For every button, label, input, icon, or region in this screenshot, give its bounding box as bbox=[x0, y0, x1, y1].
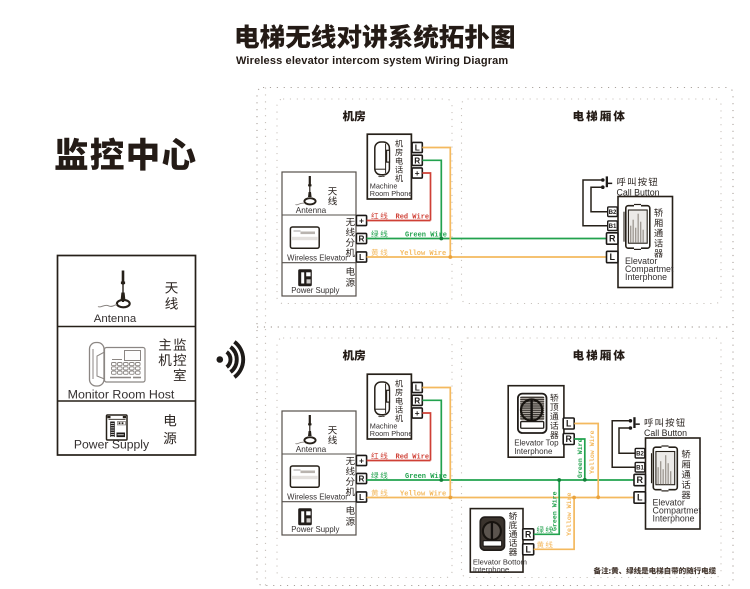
svg-text:Wireless Elevator: Wireless Elevator bbox=[287, 492, 348, 501]
svg-text:Green Wire: Green Wire bbox=[405, 232, 447, 240]
svg-text:L: L bbox=[359, 493, 364, 502]
svg-text:Power Supply: Power Supply bbox=[74, 438, 150, 452]
svg-text:Power Supply: Power Supply bbox=[291, 286, 339, 295]
svg-text:R: R bbox=[636, 475, 643, 485]
svg-text:L: L bbox=[526, 545, 532, 555]
svg-text:R: R bbox=[359, 475, 365, 484]
svg-text:Interphone: Interphone bbox=[653, 514, 695, 524]
svg-text:Antenna: Antenna bbox=[296, 445, 327, 454]
svg-text:R: R bbox=[566, 434, 573, 444]
svg-text:+: + bbox=[415, 409, 420, 418]
svg-text:Yellow Wire: Yellow Wire bbox=[589, 430, 596, 474]
svg-text:R: R bbox=[359, 235, 365, 244]
svg-text:L: L bbox=[637, 493, 643, 503]
svg-text:L: L bbox=[415, 384, 420, 393]
svg-text:L: L bbox=[609, 252, 615, 262]
svg-text:Wireless Elevator: Wireless Elevator bbox=[287, 253, 348, 262]
svg-text:B2: B2 bbox=[609, 209, 617, 216]
svg-text:B1: B1 bbox=[609, 223, 617, 230]
svg-text:Interphone: Interphone bbox=[625, 272, 667, 282]
svg-text:Room Phone: Room Phone bbox=[370, 429, 413, 438]
svg-text:R: R bbox=[525, 530, 532, 540]
svg-text:Red Wire: Red Wire bbox=[396, 454, 430, 462]
svg-text:B2: B2 bbox=[636, 450, 644, 457]
svg-text:L: L bbox=[566, 419, 572, 429]
svg-text:Yellow Wire: Yellow Wire bbox=[400, 491, 446, 499]
svg-text:Power Supply: Power Supply bbox=[291, 525, 339, 534]
svg-text:Interphone: Interphone bbox=[514, 447, 553, 456]
svg-text:Red Wire: Red Wire bbox=[396, 214, 430, 222]
svg-text:R: R bbox=[414, 156, 420, 165]
svg-text:+: + bbox=[359, 217, 364, 226]
svg-text:Antenna: Antenna bbox=[94, 313, 137, 325]
svg-text:R: R bbox=[609, 234, 616, 244]
svg-text:Room Phone: Room Phone bbox=[370, 189, 413, 198]
svg-text:Yellow Wire: Yellow Wire bbox=[566, 492, 573, 536]
svg-text:Antenna: Antenna bbox=[296, 206, 327, 215]
svg-text:Green Wire: Green Wire bbox=[405, 473, 447, 481]
svg-text:L: L bbox=[415, 144, 420, 153]
svg-text:Green Wire: Green Wire bbox=[551, 491, 558, 531]
svg-text:Yellow Wire: Yellow Wire bbox=[400, 250, 446, 258]
svg-text:Interphone: Interphone bbox=[473, 565, 509, 574]
svg-text:Monitor Room Host: Monitor Room Host bbox=[68, 387, 175, 401]
svg-text:Green Wire: Green Wire bbox=[577, 438, 584, 478]
svg-text:B1: B1 bbox=[636, 464, 644, 471]
svg-text:R: R bbox=[414, 396, 420, 405]
svg-text:+: + bbox=[415, 169, 420, 178]
svg-text:Wireless elevator intercom sys: Wireless elevator intercom system Wiring… bbox=[236, 55, 508, 67]
svg-text:Call Button: Call Button bbox=[644, 428, 687, 438]
svg-text:L: L bbox=[359, 253, 364, 262]
svg-text:+: + bbox=[359, 457, 364, 466]
